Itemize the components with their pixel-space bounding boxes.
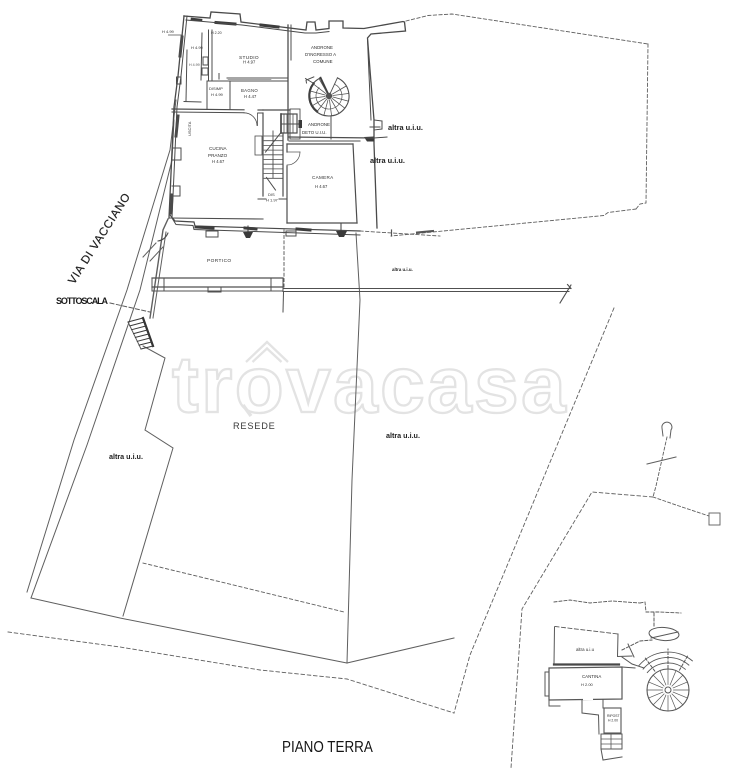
svg-text:H 4.99: H 4.99: [162, 29, 175, 34]
svg-text:altra u.i.u: altra u.i.u: [576, 647, 595, 652]
svg-text:CUCINA: CUCINA: [209, 146, 228, 151]
svg-text:D'INGRESSO A: D'INGRESSO A: [305, 52, 336, 57]
svg-text:CAMERA: CAMERA: [312, 175, 334, 180]
svg-text:H 4.97: H 4.97: [243, 60, 256, 65]
svg-text:RIPOST: RIPOST: [607, 714, 620, 718]
svg-text:SOTTOSCALA: SOTTOSCALA: [56, 296, 109, 306]
svg-text:ANDRONE: ANDRONE: [311, 45, 333, 50]
svg-text:altra u.i.u.: altra u.i.u.: [388, 123, 423, 132]
svg-text:BAGNO: BAGNO: [241, 88, 258, 93]
svg-text:altra u.i.u.: altra u.i.u.: [109, 452, 143, 461]
svg-text:DETO U.I.U.: DETO U.I.U.: [302, 130, 327, 135]
svg-text:altra u.i.u.: altra u.i.u.: [370, 156, 405, 165]
svg-text:H 4.99: H 4.99: [189, 63, 200, 67]
svg-text:H 2.20: H 2.20: [211, 31, 222, 35]
svg-text:H 4.99: H 4.99: [191, 45, 204, 50]
svg-text:PRANZO: PRANZO: [208, 153, 228, 158]
svg-text:PIANO TERRA: PIANO TERRA: [282, 739, 373, 756]
svg-text:H 4.67: H 4.67: [315, 184, 328, 189]
svg-text:COMUNE: COMUNE: [313, 59, 333, 64]
svg-text:H 1.97: H 1.97: [266, 198, 279, 203]
svg-text:USCITA: USCITA: [187, 121, 192, 136]
svg-text:H 4.67: H 4.67: [212, 159, 225, 164]
svg-text:CANTINA: CANTINA: [582, 674, 601, 679]
svg-text:DISIMP: DISIMP: [209, 86, 223, 91]
svg-text:RESEDE: RESEDE: [233, 421, 276, 431]
svg-text:altra u.i.u.: altra u.i.u.: [386, 431, 420, 440]
svg-text:H 4.99: H 4.99: [211, 92, 224, 97]
svg-text:H 2.00: H 2.00: [608, 719, 618, 723]
svg-text:VIA DI VACCIANO: VIA DI VACCIANO: [66, 191, 133, 287]
svg-text:DIS: DIS: [268, 192, 275, 197]
svg-text:trovacasa: trovacasa: [172, 340, 568, 429]
svg-text:altra u.i.u.: altra u.i.u.: [392, 267, 413, 272]
svg-text:H 2.00: H 2.00: [581, 682, 594, 687]
svg-text:ANDRONE: ANDRONE: [308, 122, 330, 127]
svg-text:PORTICO: PORTICO: [207, 258, 232, 264]
svg-text:H 4.47: H 4.47: [244, 94, 257, 99]
